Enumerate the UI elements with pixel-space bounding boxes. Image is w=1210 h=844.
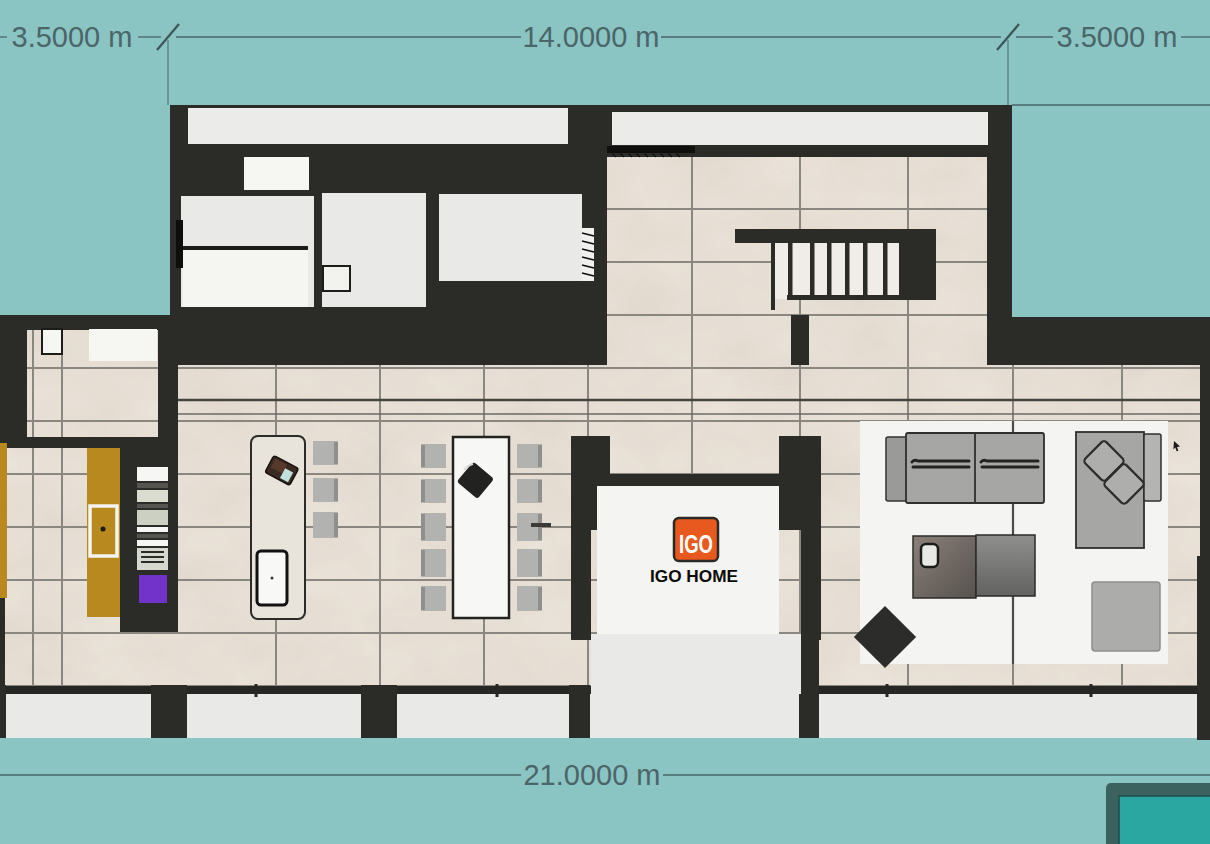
- svg-text:IGO: IGO: [679, 529, 713, 559]
- svg-text:14.0000 m: 14.0000 m: [522, 21, 659, 53]
- svg-text:21.0000 m: 21.0000 m: [523, 759, 660, 791]
- svg-text:3.5000 m: 3.5000 m: [1057, 21, 1178, 53]
- svg-text:3.5000 m: 3.5000 m: [12, 21, 133, 53]
- svg-text:IGO HOME: IGO HOME: [650, 567, 738, 586]
